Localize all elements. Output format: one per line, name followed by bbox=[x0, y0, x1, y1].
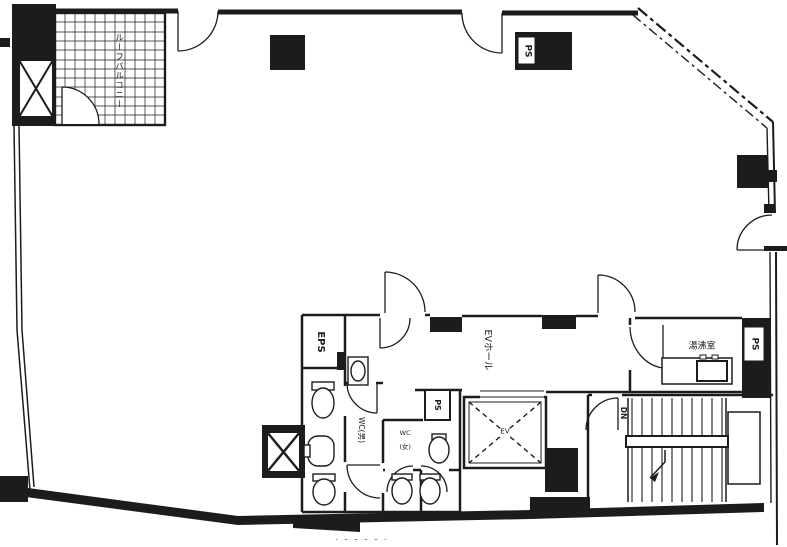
kitchenette-counter bbox=[662, 355, 732, 384]
duct-x-box bbox=[262, 425, 305, 478]
wc-female-label: WC (女) bbox=[391, 423, 411, 459]
bottom-clipped-text: ⌒⌒⌒⌒⌒ bbox=[336, 539, 406, 547]
door-arc-office-right bbox=[598, 275, 635, 313]
wash-basin-female bbox=[429, 437, 449, 463]
door-arc-top-left bbox=[178, 11, 218, 51]
door-arc-wc-male-lower bbox=[347, 465, 380, 498]
pillar-top-right bbox=[737, 155, 768, 188]
toilet-4 bbox=[420, 478, 440, 504]
bottom-left-wall-block bbox=[0, 476, 28, 502]
top-left-shaft-block bbox=[12, 4, 56, 126]
core-doors bbox=[347, 272, 663, 498]
ps-core-label: PS bbox=[433, 399, 441, 411]
ps-top-label: PS bbox=[523, 44, 532, 57]
toilet-2 bbox=[313, 479, 335, 505]
toilet-3 bbox=[392, 478, 412, 504]
roof-balcony-label: ルーフバルコニー bbox=[114, 33, 123, 109]
door-arc-evhall-inner bbox=[380, 318, 410, 348]
door-arc-kitchenette bbox=[630, 325, 663, 368]
stair-treads bbox=[632, 398, 722, 502]
eps-label: EPS bbox=[315, 331, 325, 352]
pillar-top-mid bbox=[270, 35, 305, 70]
door-arc-stairwell bbox=[586, 398, 618, 430]
kitchen-sink bbox=[697, 361, 727, 381]
roof-balcony-room bbox=[55, 13, 165, 125]
kitchenette-label: 湯沸室 bbox=[688, 343, 715, 352]
stair-landing-box bbox=[728, 412, 760, 484]
pillar-ev-corner bbox=[545, 448, 578, 492]
toilet-fixtures bbox=[304, 357, 449, 505]
floor-plan-page: ルーフバルコニー PS EPS EVホール EV PS WC(男) WC (女)… bbox=[0, 0, 787, 547]
door-arc-wc-male-upper bbox=[347, 383, 377, 413]
ps-right-block bbox=[742, 318, 771, 398]
stairs-dn-label: DN bbox=[619, 407, 627, 420]
wash-basin-left bbox=[308, 436, 334, 466]
wc-male-label: WC(男) bbox=[357, 417, 365, 443]
elevator-label: EV bbox=[498, 429, 511, 436]
ps-right-label: PS bbox=[750, 337, 759, 350]
toilet-1 bbox=[312, 388, 334, 418]
stair-mid-rail bbox=[626, 436, 728, 447]
ev-hall-label: EVホール bbox=[482, 329, 492, 370]
door-arc-right-wall bbox=[737, 215, 772, 250]
door-arc-top-right bbox=[462, 13, 502, 53]
door-arc-office-left bbox=[385, 272, 425, 313]
stairs bbox=[626, 398, 760, 502]
